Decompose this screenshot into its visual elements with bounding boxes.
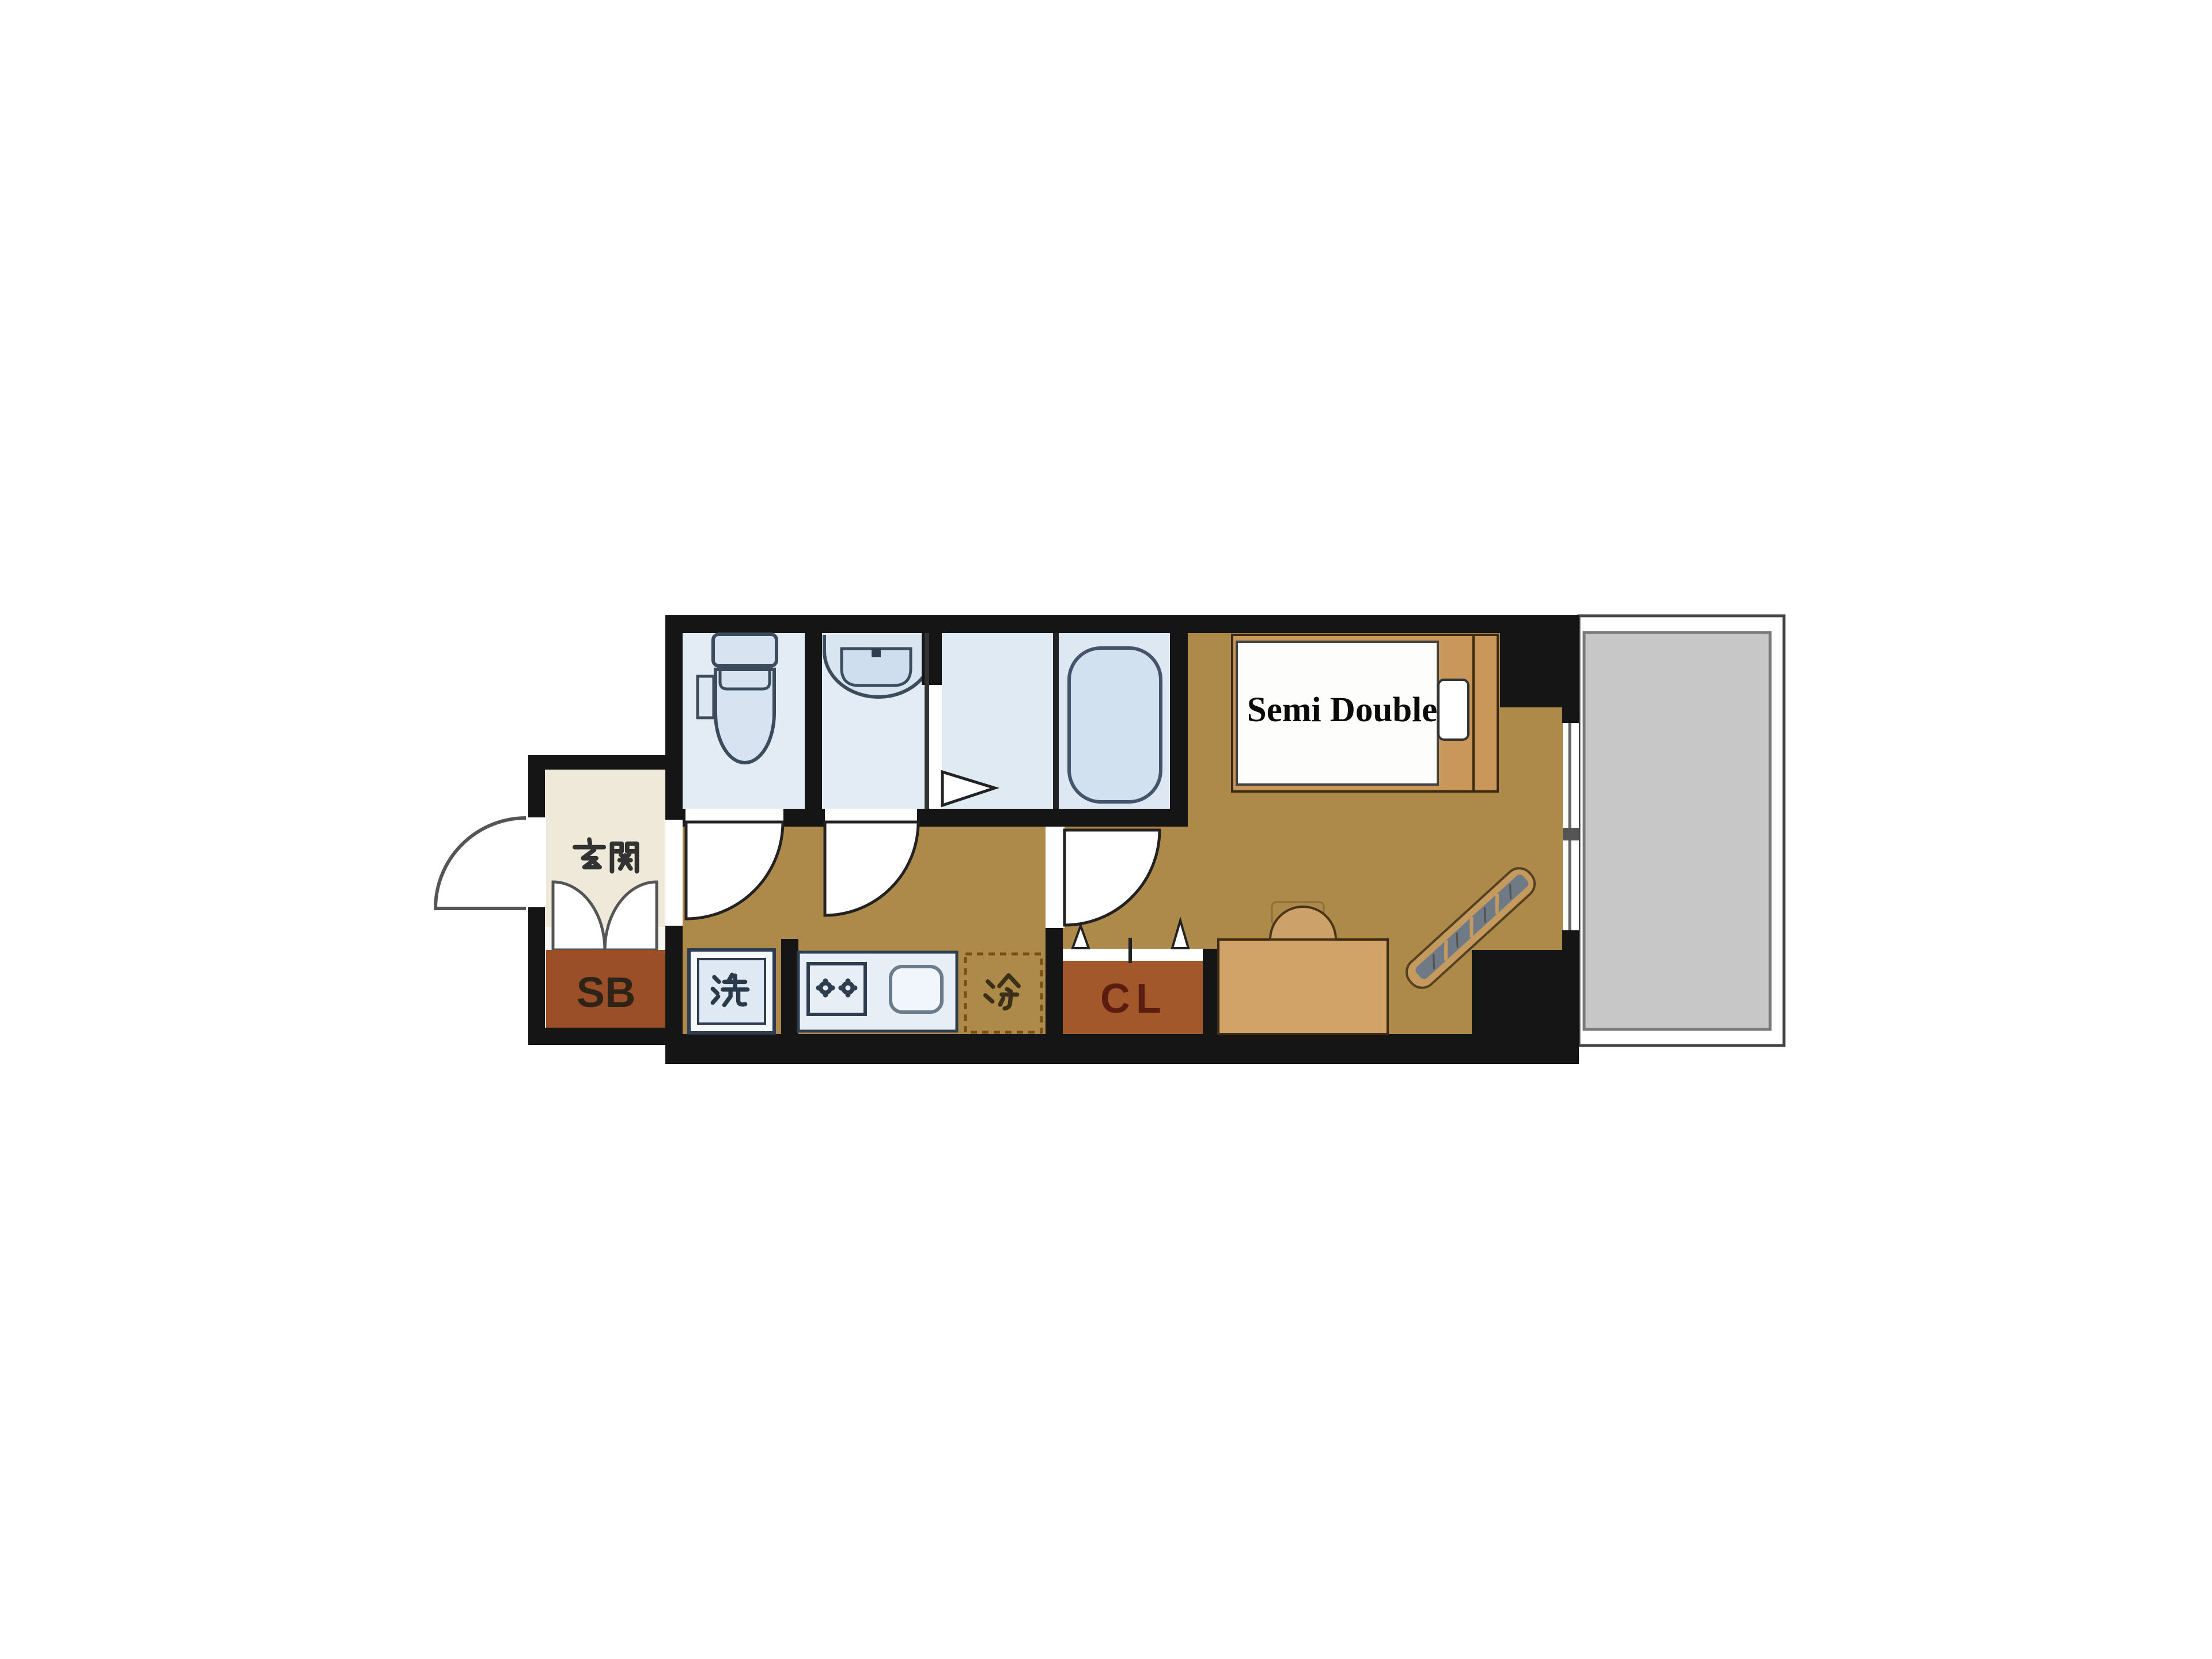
svg-text:Semi Double: Semi Double: [1247, 691, 1437, 729]
svg-text:CL: CL: [1100, 976, 1167, 1022]
svg-text:SB: SB: [577, 968, 636, 1016]
